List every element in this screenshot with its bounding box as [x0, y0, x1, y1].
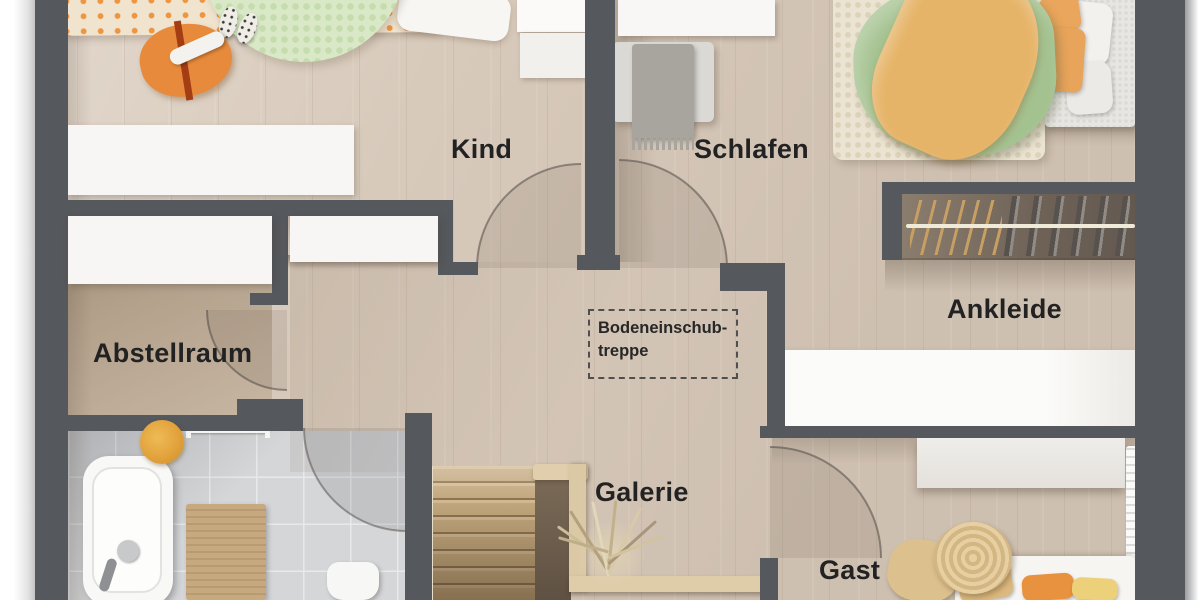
room-label-kind: Kind	[451, 134, 512, 165]
towel	[140, 420, 184, 464]
wall-ankleide-west	[767, 291, 785, 438]
wall-schlafen-south	[720, 263, 785, 291]
wall-outer-left	[35, 0, 68, 600]
room-label-schlafen: Schlafen	[694, 134, 809, 165]
wall-outer-right	[1135, 0, 1185, 600]
wall-storage-east	[272, 200, 288, 305]
wall-segment	[438, 262, 478, 275]
annotation-line-1: Bodeneinschub-	[598, 317, 728, 340]
plan-margin-left	[0, 0, 35, 600]
wall-segment	[577, 255, 620, 270]
annotation-line-2: treppe	[598, 340, 728, 363]
storage-cabinet	[68, 216, 272, 284]
room-label-galerie: Galerie	[595, 477, 689, 508]
wall-segment	[250, 293, 287, 305]
wall-segment	[237, 399, 303, 416]
loft-stair-annotation: Bodeneinschub- treppe	[588, 309, 738, 379]
room-label-ankleide: Ankleide	[947, 294, 1062, 325]
room-label-abstellraum: Abstellraum	[93, 338, 252, 369]
floor-plan: Kind Schlafen Abstellraum Ankleide Galer…	[0, 0, 1200, 600]
wall-segment	[438, 200, 453, 266]
plan-margin-right	[1185, 0, 1200, 600]
wall-closet-niche	[882, 182, 1135, 194]
wall-gast-north	[760, 426, 1135, 438]
wall-kind-south	[35, 200, 453, 216]
wall-kind-schlafen	[585, 0, 615, 255]
niche-cabinet	[290, 216, 438, 262]
wall-stairwell-west	[405, 413, 432, 600]
room-label-gast: Gast	[819, 555, 880, 586]
wall-gast-west	[760, 558, 778, 600]
